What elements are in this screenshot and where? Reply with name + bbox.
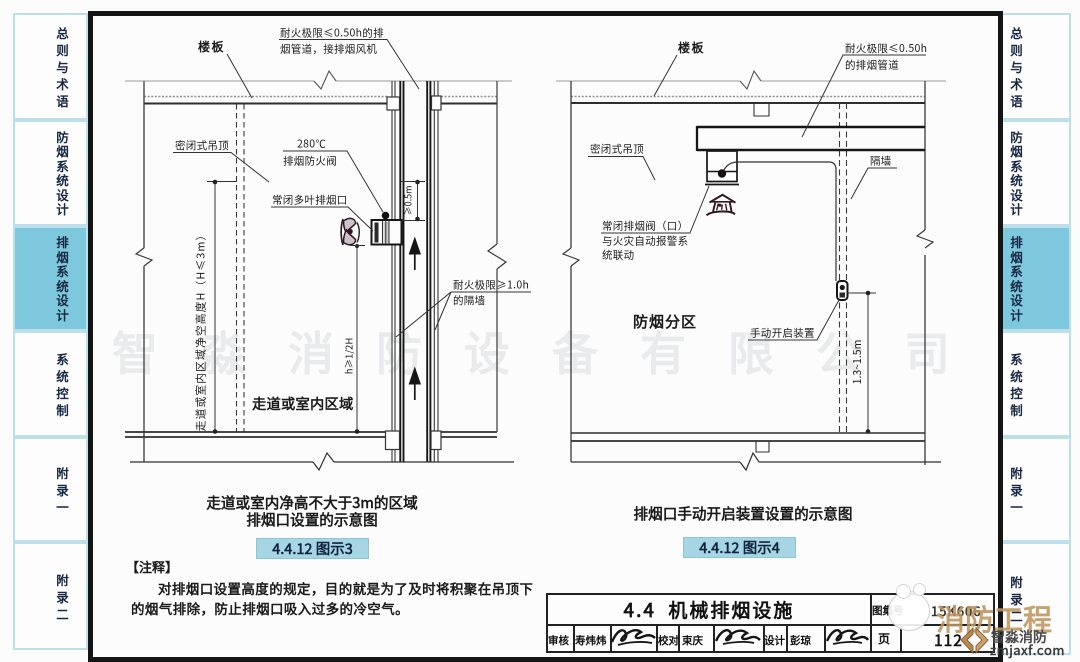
svg-text:常闭排烟阀（口）: 常闭排烟阀（口） [602,219,688,234]
svg-text:烟管道，接排烟风机: 烟管道，接排烟风机 [280,42,377,57]
svg-text:的隔墙: 的隔墙 [453,293,486,308]
svg-text:走道或室内区域: 走道或室内区域 [252,393,354,414]
svg-text:常闭多叶排烟口: 常闭多叶排烟口 [272,193,348,208]
svg-text:h≥1/2H: h≥1/2H [342,338,356,374]
svg-text:楼板: 楼板 [198,38,225,55]
svg-text:密闭式吊顶: 密闭式吊顶 [175,138,229,153]
svg-text:耐火极限≤0.50h: 耐火极限≤0.50h [845,41,927,56]
svg-text:密闭式吊顶: 密闭式吊顶 [590,142,644,157]
svg-text:楼板: 楼板 [678,39,705,56]
svg-text:统联动: 统联动 [602,248,634,263]
svg-text:280℃: 280℃ [297,137,326,152]
svg-text:走道或室内区域净空高度H（H≤3m）: 走道或室内区域净空高度H（H≤3m） [193,229,209,432]
svg-text:耐火极限≤0.50h的排: 耐火极限≤0.50h的排 [280,26,384,41]
svg-text:排烟防火阀: 排烟防火阀 [283,154,337,169]
svg-text:≥0.5m: ≥0.5m [402,186,415,216]
svg-text:隔墙: 隔墙 [870,154,892,169]
svg-text:耐火极限≥1.0h: 耐火极限≥1.0h [453,278,529,293]
svg-text:的排烟管道: 的排烟管道 [845,58,899,73]
svg-text:1.3~1.5m: 1.3~1.5m [850,340,865,385]
svg-text:防烟分区: 防烟分区 [633,311,697,332]
svg-text:与火灾自动报警系: 与火灾自动报警系 [602,234,688,249]
svg-text:手动开启装置: 手动开启装置 [750,326,815,341]
